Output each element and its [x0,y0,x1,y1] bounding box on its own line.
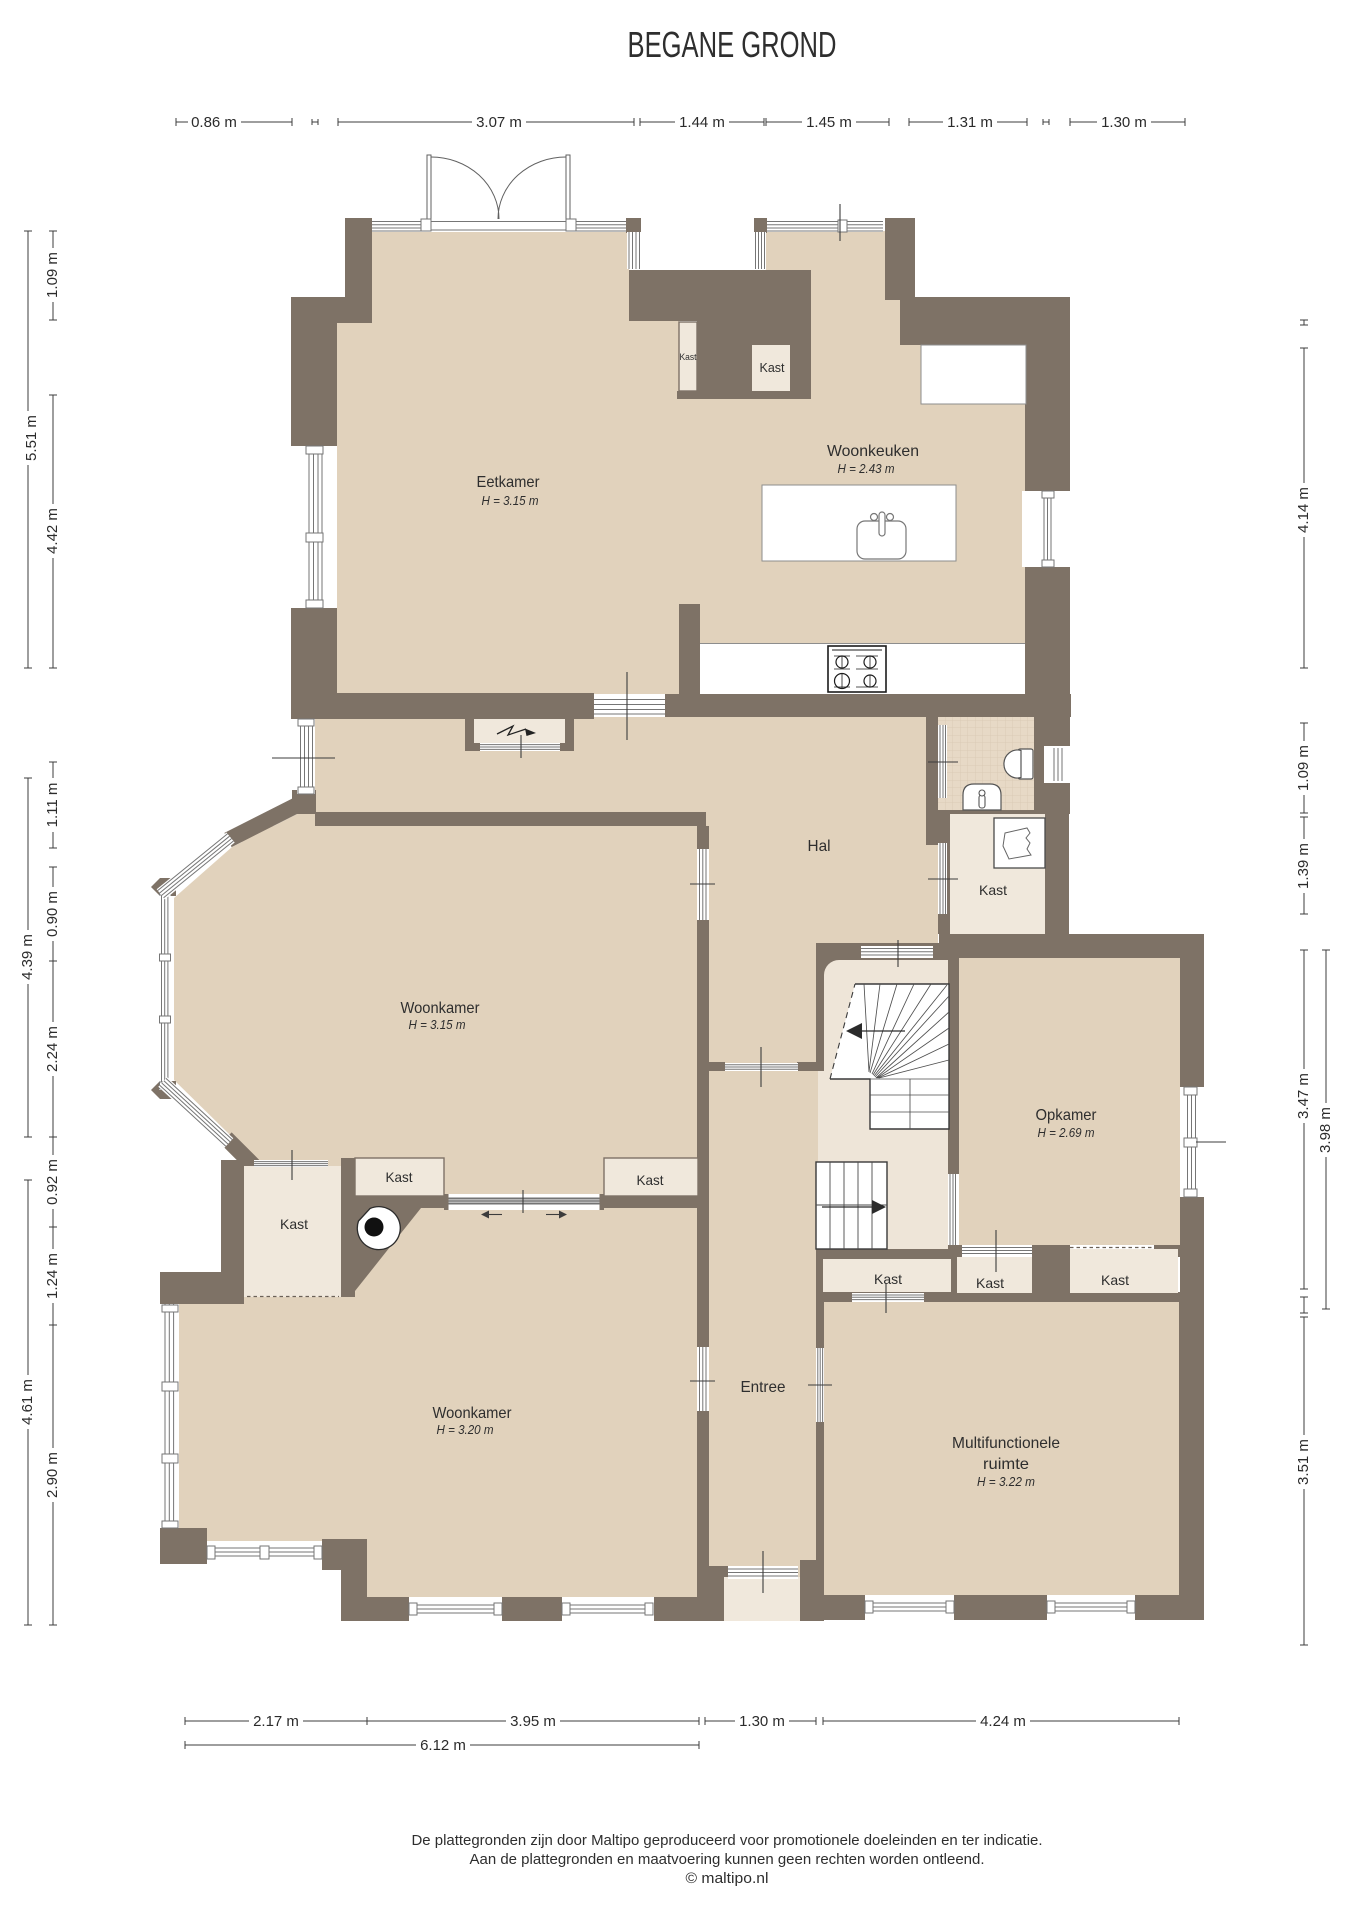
svg-text:1.24 m: 1.24 m [44,1253,61,1299]
svg-text:Woonkamer: Woonkamer [401,1000,481,1017]
svg-text:4.39 m: 4.39 m [19,934,36,980]
svg-text:H = 3.15 m: H = 3.15 m [482,494,539,508]
svg-text:1.11 m: 1.11 m [44,783,61,828]
svg-text:Kast: Kast [976,1275,1004,1291]
svg-text:1.09 m: 1.09 m [44,252,61,298]
svg-text:4.24 m: 4.24 m [980,1713,1026,1730]
svg-text:H = 3.20 m: H = 3.20 m [437,1423,494,1437]
svg-text:4.14 m: 4.14 m [1295,487,1312,533]
svg-text:4.61 m: 4.61 m [19,1379,36,1425]
svg-text:© maltipo.nl: © maltipo.nl [686,1870,769,1887]
svg-text:Kast: Kast [1101,1272,1129,1288]
svg-text:H = 3.22 m: H = 3.22 m [977,1475,1035,1489]
svg-text:H = 2.69 m: H = 2.69 m [1038,1126,1095,1140]
svg-text:Kast: Kast [760,361,786,375]
svg-text:1.30 m: 1.30 m [739,1713,785,1730]
svg-text:3.98 m: 3.98 m [1317,1107,1334,1153]
svg-text:0.92 m: 0.92 m [44,1159,61,1205]
svg-text:1.31 m: 1.31 m [947,114,993,131]
svg-text:0.90 m: 0.90 m [44,891,61,937]
svg-text:1.45 m: 1.45 m [806,114,852,131]
svg-text:Kast: Kast [280,1216,308,1232]
svg-text:1.09 m: 1.09 m [1295,745,1312,791]
svg-text:3.95 m: 3.95 m [510,1713,556,1730]
svg-text:0.86 m: 0.86 m [191,114,237,131]
svg-text:Multifunctionele: Multifunctionele [952,1435,1060,1452]
svg-text:3.51 m: 3.51 m [1295,1439,1312,1485]
svg-text:1.44 m: 1.44 m [679,114,725,131]
svg-text:1.39 m: 1.39 m [1295,843,1312,889]
svg-text:H = 2.43 m: H = 2.43 m [838,462,895,476]
svg-text:Entree: Entree [741,1379,786,1396]
svg-text:Woonkeuken: Woonkeuken [827,443,919,460]
svg-text:6.12 m: 6.12 m [420,1737,466,1754]
svg-text:Eetkamer: Eetkamer [477,474,541,491]
svg-text:Kast: Kast [386,1169,413,1185]
svg-text:Opkamer: Opkamer [1036,1107,1098,1124]
svg-text:BEGANE GROND: BEGANE GROND [628,24,837,65]
svg-text:Aan de plattegronden en maatvo: Aan de plattegronden en maatvoering kunn… [470,1851,985,1868]
svg-text:Kast: Kast [637,1172,664,1188]
svg-text:2.90 m: 2.90 m [44,1452,61,1498]
svg-text:2.17 m: 2.17 m [253,1713,299,1730]
svg-text:De plattegronden zijn door Mal: De plattegronden zijn door Maltipo gepro… [412,1832,1043,1849]
svg-text:3.47 m: 3.47 m [1295,1073,1312,1119]
svg-text:Kast: Kast [680,352,697,363]
svg-text:Kast: Kast [979,882,1007,898]
svg-text:5.51 m: 5.51 m [23,415,40,461]
svg-text:H = 3.15 m: H = 3.15 m [409,1018,466,1032]
svg-text:1.30 m: 1.30 m [1101,114,1147,131]
svg-text:Hal: Hal [808,838,831,855]
svg-text:4.42 m: 4.42 m [44,508,61,554]
svg-text:3.07 m: 3.07 m [476,114,522,131]
svg-text:2.24 m: 2.24 m [44,1026,61,1072]
svg-text:Kast: Kast [874,1271,902,1287]
svg-text:ruimte: ruimte [983,1456,1029,1473]
svg-text:Woonkamer: Woonkamer [433,1405,513,1422]
